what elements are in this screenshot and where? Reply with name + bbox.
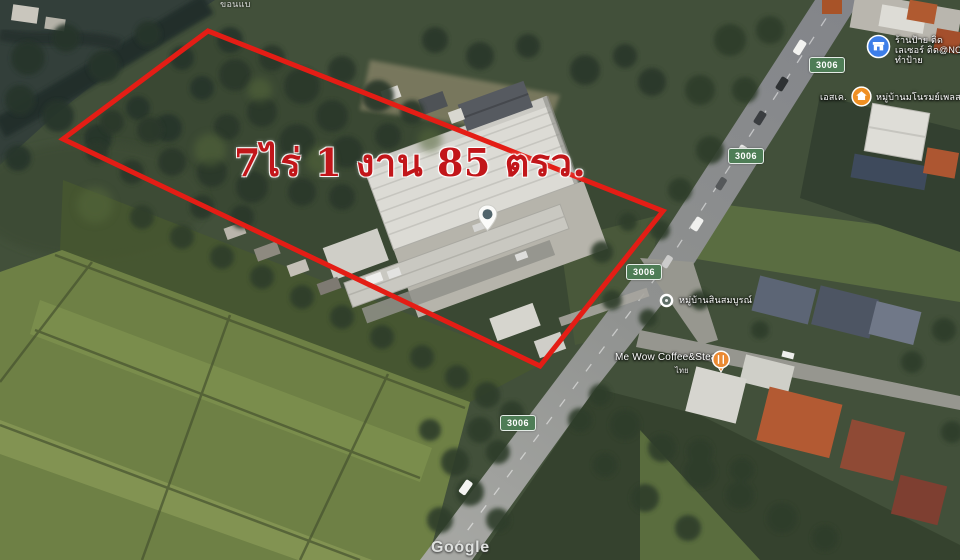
place-pin-icon[interactable]	[477, 204, 498, 232]
shop-icon[interactable]	[866, 34, 891, 59]
shop-label-line1: ร้านป้าย ติด	[895, 35, 960, 45]
satellite-imagery	[0, 0, 960, 560]
route-badge: 3006	[500, 415, 536, 431]
restaurant-icon[interactable]	[711, 350, 731, 376]
shop-label-line3: ทำป้าย	[895, 55, 960, 65]
canal-label: ขอนแบ	[220, 0, 251, 11]
village-sinsombun-label[interactable]: หมู่บ้านสินสมบูรณ์	[679, 295, 752, 305]
route-badge: 3006	[728, 148, 764, 164]
route-badge: 3006	[809, 57, 845, 73]
route-badge: 3006	[626, 264, 662, 280]
restaurant-category: ไทย	[675, 366, 689, 376]
map-canvas[interactable]: ขอนแบ 7ไร่ 1 งาน 85 ตรว. 3006 3006 3006 …	[0, 0, 960, 560]
shop-label-line2: เลเซอร์ ติด@NC	[895, 45, 960, 55]
village-manorom-label[interactable]: หมู่บ้านมโนรมย์เพลส 2	[876, 92, 960, 102]
restaurant-label[interactable]: Me Wow Coffee&Steak	[615, 353, 708, 363]
plot-area-label: 7ไร่ 1 งาน 85 ตรว.	[234, 142, 564, 184]
neighborhood-icon[interactable]	[659, 293, 674, 308]
village-manorom-prefix: เอสเค.	[820, 92, 847, 102]
home-icon[interactable]	[851, 86, 872, 107]
google-logo: Google	[431, 539, 490, 557]
